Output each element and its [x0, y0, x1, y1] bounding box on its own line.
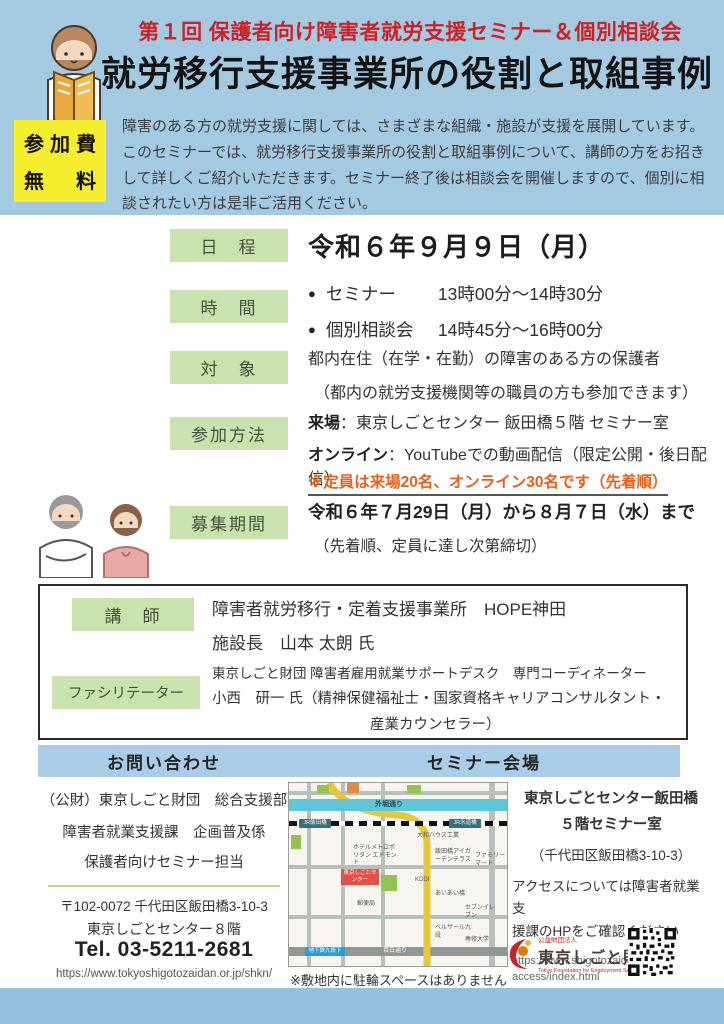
- online-prefix: オンライン: [308, 447, 388, 464]
- map-label-senshu-univ: 専修大学: [465, 937, 495, 945]
- label-participation: 参加方法: [170, 417, 288, 450]
- map-label-kddi: KDDI: [415, 877, 429, 885]
- map-label-aiai-bashi: あいあい橋: [435, 891, 465, 899]
- contact-org-line: （公財）東京しごと財団 総合支援部: [38, 789, 290, 810]
- time-name: 個別相談会: [326, 317, 438, 342]
- period-line1: 令和６年７月29日（月）から８月７日（水）まで: [308, 499, 695, 524]
- contact-header: お問い合わせ: [38, 745, 290, 777]
- facilitator-line3: 産業カウンセラー）: [370, 713, 501, 734]
- map-label-tokyo-shigoto-center: 東京しごとセンター: [341, 869, 379, 885]
- map-label-family-mart: ファミリーマート: [475, 853, 505, 868]
- fee-badge: 参加費 無 料: [14, 120, 106, 202]
- contact-building: 東京しごとセンター８階: [38, 919, 290, 939]
- target-line1: 都内在住（在学・在勤）の障害のある方の保護者: [308, 345, 660, 369]
- contact-url: https://www.tokyoshigotozaidan.or.jp/shk…: [38, 968, 290, 980]
- contact-org-line: 障害者就業支援課 企画普及係: [38, 821, 290, 842]
- map-label-daiwa-house: 大和ハウス工業: [417, 833, 465, 841]
- period-line2: （先着順、定員に達し次第締切）: [314, 534, 547, 556]
- fee-line2: 無 料: [24, 165, 96, 194]
- venue-access: アクセスについては障害者就業支 援課のHPをご確認ください: [512, 876, 710, 943]
- contact-postal: 〒102-0072 千代田区飯田橋3-10-3: [38, 895, 290, 915]
- map-green-block: [381, 875, 397, 891]
- venue-header: セミナー会場: [288, 745, 680, 777]
- contact-tel: Tel. 03-5211-2681: [38, 938, 290, 962]
- venue-name-line2: ５階セミナー室: [512, 812, 710, 838]
- parents-couple-icon: [30, 490, 162, 578]
- lecturer-line1: 障害者就労移行・定着支援事業所 HOPE神田: [212, 595, 566, 620]
- target-line2: （都内の就労支援機関等の職員の方も参加できます）: [314, 379, 698, 403]
- time-row-seminar: ● セミナー 13時00分～14時30分: [308, 281, 603, 306]
- map-label-post-office: 郵便局: [357, 901, 375, 909]
- time-value: 13時00分～14時30分: [438, 281, 603, 306]
- label-period: 募集期間: [170, 506, 288, 539]
- map-orange-block: [347, 783, 359, 793]
- map-label-hotel-edmont: ホテルメトロポリタン エドモント: [353, 845, 397, 868]
- contact-divider: [48, 885, 280, 887]
- label-facilitator: ファシリテーター: [52, 676, 200, 709]
- map-note: ※敷地内に駐輪スペースはありません: [290, 970, 507, 989]
- fee-line1: 参加費: [24, 128, 96, 157]
- venue-name-line1: 東京しごとセンター飯田橋: [512, 786, 710, 812]
- label-target: 対 象: [170, 351, 288, 384]
- map-green-block: [317, 785, 329, 793]
- map-label-seven-eleven: セブンイレブン: [465, 905, 495, 920]
- contact-org-line: 保護者向けセミナー担当: [38, 851, 290, 872]
- map-label-igarden: 飯田橋アイガーデンテラス: [435, 849, 473, 864]
- venue-access-line1: アクセスについては障害者就業支: [512, 879, 700, 916]
- onsite-text: ：東京しごとセンター 飯田橋５階 セミナー室: [340, 415, 669, 432]
- map-label-sotobori: 外堀通り: [375, 801, 403, 810]
- map-metro-kudanshita: 地下鉄九段下: [305, 947, 345, 956]
- venue-address: （千代田区飯田橋3-10-3）: [512, 844, 710, 864]
- bullet-icon: ●: [308, 286, 316, 301]
- speakers-box: 講 師 障害者就労移行・定着支援事業所 HOPE神田 施設長 山本 太朗 氏 東…: [38, 584, 688, 740]
- time-name: セミナー: [326, 281, 438, 306]
- label-schedule: 日 程: [170, 229, 288, 262]
- bullet-icon: ●: [308, 322, 316, 337]
- intro-paragraph: 障害のある方の就労支援に関しては、さまざまな組織・施設が支援を展開しています。こ…: [122, 114, 718, 217]
- seminar-flyer: 第１回 保護者向け障害者就労支援セミナー＆個別相談会 就労移行支援事業所の役割と…: [0, 0, 724, 1024]
- label-lecturer: 講 師: [72, 598, 194, 631]
- map-green-block: [407, 785, 421, 793]
- access-map: 外堀通り JR飯田橋 JR水道橋 大和ハウス工業 ホテルメトロポリタン エドモン…: [288, 782, 508, 967]
- map-green-block: [291, 835, 301, 849]
- qr-code: [628, 928, 676, 976]
- onsite-prefix: 来場: [308, 415, 340, 432]
- facilitator-line1: 東京しごと財団 障害者雇用就業サポートデスク 専門コーディネーター: [212, 662, 647, 682]
- time-row-consult: ● 個別相談会 14時45分～16時00分: [308, 317, 603, 342]
- map-label-mejiro-dori: 目白通り: [383, 948, 407, 956]
- capacity-note: ※定員は来場20名、オンライン30名です（先着順）: [308, 470, 668, 496]
- facilitator-line2: 小西 研一 氏（精神保健福祉士・国家資格キャリアコンサルタント・: [212, 687, 666, 708]
- label-time: 時 間: [170, 290, 288, 323]
- map-station-jr-iidabashi: JR飯田橋: [299, 819, 331, 828]
- foundation-logo-mark: [504, 935, 534, 973]
- schedule-value: 令和６年９月９日（月）: [308, 227, 605, 264]
- map-station-jr-suidobashi: JR水道橋: [449, 819, 481, 828]
- seminar-subtitle: 第１回 保護者向け障害者就労支援セミナー＆個別相談会: [105, 16, 715, 46]
- participation-onsite: 来場：東京しごとセンター 飯田橋５階 セミナー室: [308, 409, 669, 433]
- time-value: 14時45分～16時00分: [438, 317, 603, 342]
- lecturer-line2: 施設長 山本 太朗 氏: [212, 629, 374, 654]
- bottom-band: [0, 988, 724, 1024]
- seminar-title: 就労移行支援事業所の役割と取組事例: [98, 46, 716, 97]
